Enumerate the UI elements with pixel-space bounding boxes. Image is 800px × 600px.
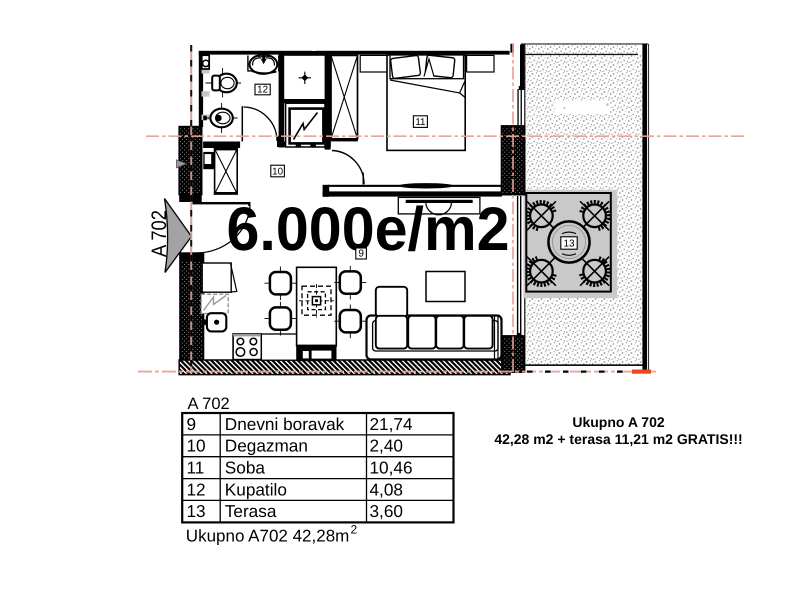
svg-text:11: 11 — [415, 117, 425, 128]
svg-text:21,74: 21,74 — [370, 414, 413, 434]
svg-text:10,46: 10,46 — [370, 458, 413, 478]
svg-text:Ukupno A702 42,28m: Ukupno A702 42,28m — [186, 527, 350, 546]
svg-text:Kupatilo: Kupatilo — [225, 479, 287, 499]
svg-text:Terasa: Terasa — [225, 501, 277, 521]
svg-text:A 702: A 702 — [148, 210, 171, 257]
svg-text:10: 10 — [272, 166, 283, 177]
svg-text:6.000e/m2: 6.000e/m2 — [227, 195, 510, 264]
svg-text:A 702: A 702 — [188, 395, 230, 413]
svg-text:9: 9 — [187, 414, 197, 434]
svg-text:Ukupno A 702: Ukupno A 702 — [572, 414, 665, 430]
svg-text:Degazman: Degazman — [225, 436, 308, 456]
svg-text:2,40: 2,40 — [370, 436, 403, 456]
svg-text:12: 12 — [187, 479, 206, 499]
svg-text:9: 9 — [358, 249, 364, 260]
svg-text:4,08: 4,08 — [370, 479, 403, 499]
svg-text:3,60: 3,60 — [370, 501, 403, 521]
svg-text:11: 11 — [187, 458, 205, 478]
svg-text:2: 2 — [351, 523, 358, 537]
svg-text:Soba: Soba — [225, 458, 266, 478]
svg-text:13: 13 — [187, 501, 206, 521]
svg-text:13: 13 — [563, 239, 575, 250]
svg-text:12: 12 — [257, 84, 268, 95]
svg-text:42,28 m2 + terasa 11,21 m2 GRA: 42,28 m2 + terasa 11,21 m2 GRATIS!!! — [494, 431, 742, 447]
svg-text:Dnevni boravak: Dnevni boravak — [225, 414, 345, 434]
svg-text:10: 10 — [187, 436, 206, 456]
